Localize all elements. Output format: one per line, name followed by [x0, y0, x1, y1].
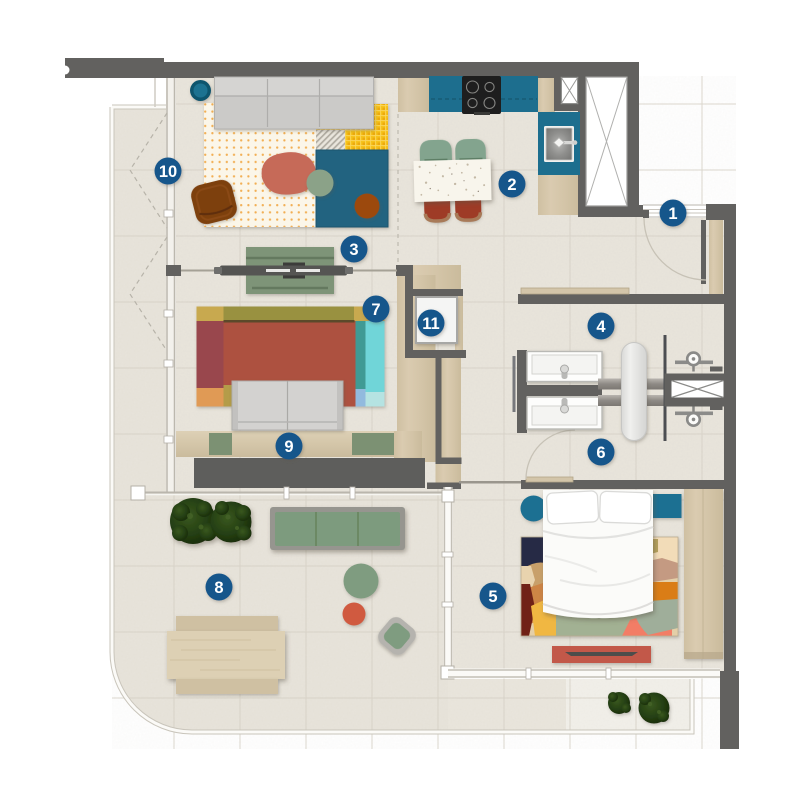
svg-text:3: 3 [349, 241, 358, 259]
svg-text:11: 11 [422, 315, 439, 333]
svg-text:4: 4 [596, 318, 606, 336]
svg-text:1: 1 [668, 205, 677, 223]
svg-text:8: 8 [214, 579, 223, 597]
svg-text:6: 6 [596, 444, 605, 462]
svg-text:9: 9 [284, 438, 293, 456]
svg-text:2: 2 [507, 176, 516, 194]
svg-text:5: 5 [488, 588, 497, 606]
svg-text:10: 10 [159, 163, 177, 181]
svg-text:7: 7 [371, 301, 380, 319]
